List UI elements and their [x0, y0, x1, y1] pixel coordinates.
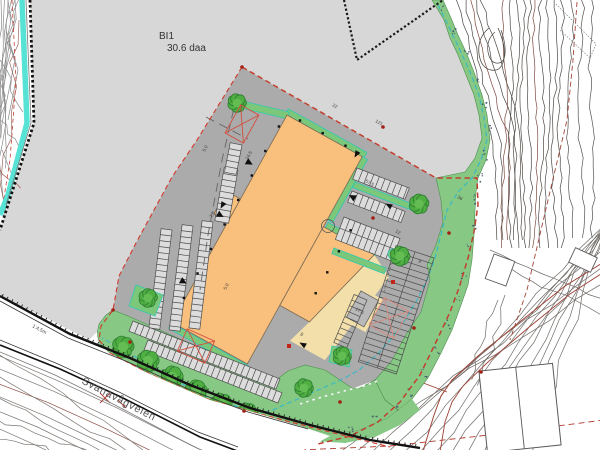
svg-text:BI1: BI1: [159, 31, 174, 42]
svg-text:30.6 daa: 30.6 daa: [167, 43, 206, 54]
